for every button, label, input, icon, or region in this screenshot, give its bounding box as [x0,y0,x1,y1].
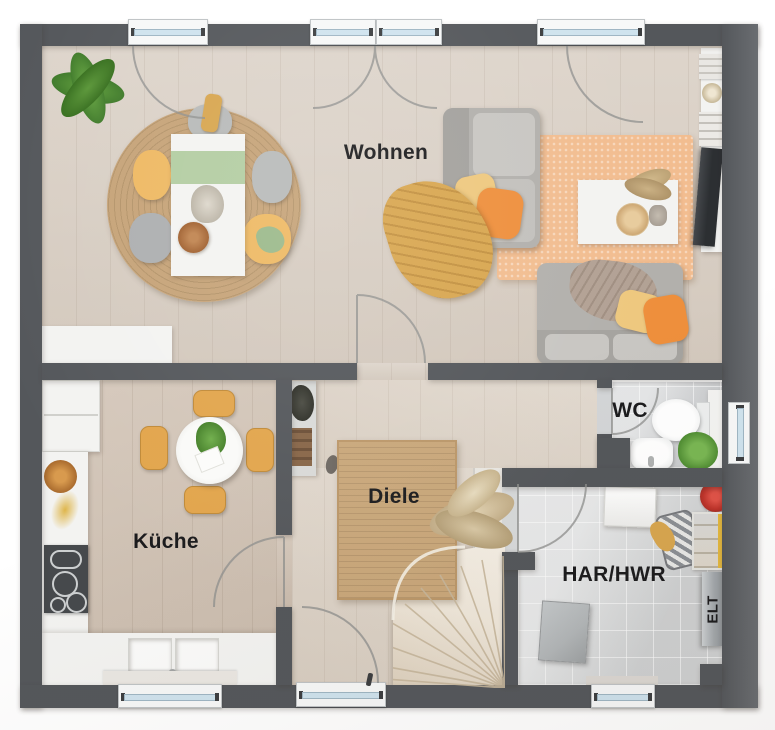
door-swing-overlay [0,0,775,730]
room-label-wc: WC [605,399,655,423]
door-swing-kitchen [214,537,284,607]
door-swing-utility [518,484,586,552]
door-swing-terrace-2-right [375,46,437,108]
stair-curved-edge [393,547,465,620]
room-label-wohnen: Wohnen [336,141,436,165]
room-label-har: HAR/HWR [554,563,674,587]
room-label-kueche: Küche [116,530,216,554]
stair-treads [373,556,505,688]
room-label-diele: Diele [344,485,444,509]
door-swing-entry [302,607,378,683]
floor-plan: ELT [0,0,775,730]
door-swing-terrace-2-left [313,46,375,108]
door-swing-living-hall [357,295,425,363]
door-swing-terrace-3 [567,46,643,122]
door-swing-terrace-1 [133,46,205,118]
